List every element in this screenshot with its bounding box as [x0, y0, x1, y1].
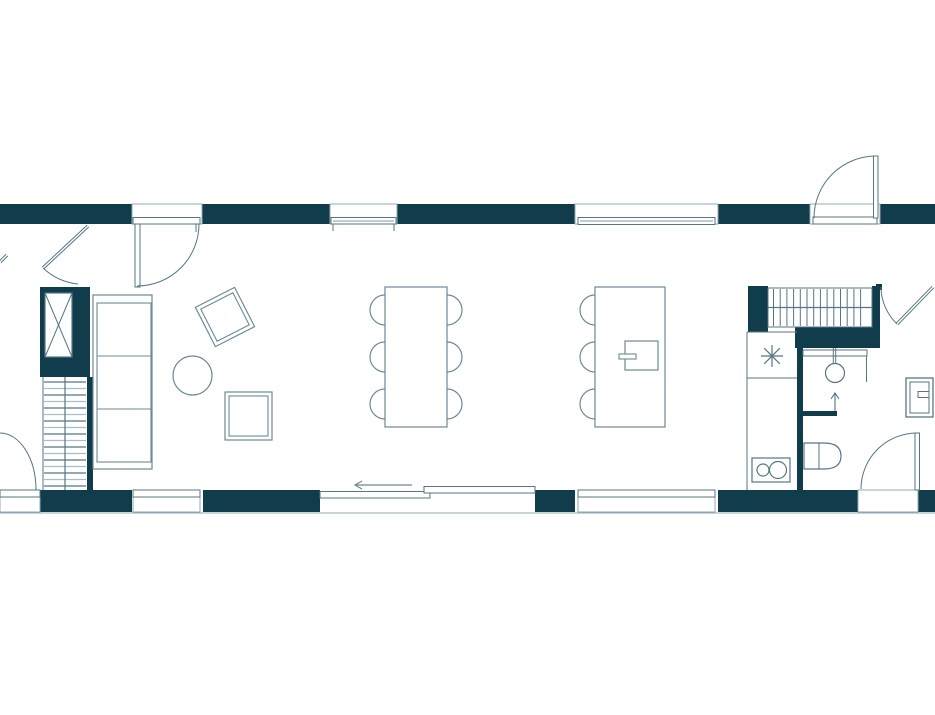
bottom-window-2-sill — [578, 490, 715, 497]
dining-chair-left-2 — [370, 342, 385, 372]
bathroom-stub-wall — [803, 411, 837, 416]
french-door-arc — [137, 224, 199, 286]
coffee-table-round — [173, 356, 212, 395]
dining-chair-right-2 — [447, 342, 462, 372]
french-door-leaf — [135, 224, 140, 287]
top-wall-segment-c — [397, 204, 575, 224]
stair-side-wall — [87, 377, 93, 490]
dining-table — [385, 287, 447, 427]
kitchen-sink-bowl-large — [770, 462, 787, 479]
bottom-wall-segment-b — [203, 490, 320, 512]
sofa-inner — [97, 303, 151, 462]
island-chair-1 — [580, 295, 595, 325]
bathroom-top-wall — [795, 327, 880, 348]
shower-head — [826, 364, 845, 383]
wall-cabinet-handle — [918, 392, 929, 398]
top-wall-segment-a — [0, 204, 132, 224]
hall-door-leaf — [44, 227, 89, 269]
bath-door-leaf — [915, 433, 920, 490]
bath-door-arc — [861, 433, 917, 489]
bottom-window-1-sill — [133, 490, 200, 497]
floor-plan-viewport — [0, 0, 935, 715]
side-table-square-outer — [225, 392, 272, 440]
corner-door-leaf — [896, 286, 932, 323]
dining-chair-right-1 — [447, 295, 462, 325]
edge-door-tick — [1, 256, 8, 263]
entry-door-threshold — [813, 217, 877, 224]
island-chair-2 — [580, 342, 595, 372]
window-1-sill — [133, 218, 200, 225]
bathroom-divider-wall — [797, 348, 803, 490]
island-chair-3 — [580, 389, 595, 419]
dining-chair-left-1 — [370, 295, 385, 325]
toilet-body — [804, 443, 841, 469]
bottom-window-0-sill — [0, 490, 40, 497]
kitchen-sink-bowl-small — [757, 464, 769, 476]
bottom-wall-segment-e — [918, 490, 935, 512]
dining-chair-left-3 — [370, 389, 385, 419]
entry-door-leaf — [874, 156, 879, 218]
bottom-wall-segment-c — [535, 490, 575, 512]
bottom-wall-segment-d — [718, 490, 858, 512]
top-wall-segment-d — [718, 204, 810, 224]
top-wall-segment-e — [880, 204, 935, 224]
terrace-door-arc — [0, 433, 36, 490]
shower-screen — [803, 350, 867, 356]
floor-plan-svg — [0, 0, 935, 715]
island-faucet — [619, 354, 636, 359]
sliding-door-panel-a — [320, 492, 430, 499]
hall-door-arc — [43, 268, 78, 284]
bath-door-frame — [858, 490, 918, 512]
corner-door-leaf — [898, 288, 934, 325]
kitchen-wall-left-pillar — [748, 286, 768, 332]
sliding-door-panel-b — [424, 487, 535, 494]
dining-chair-right-3 — [447, 389, 462, 419]
corner-door-arc — [881, 287, 897, 324]
hall-door-leaf — [42, 225, 87, 267]
top-wall-segment-b — [202, 204, 330, 224]
bottom-wall-segment-a — [40, 490, 132, 512]
